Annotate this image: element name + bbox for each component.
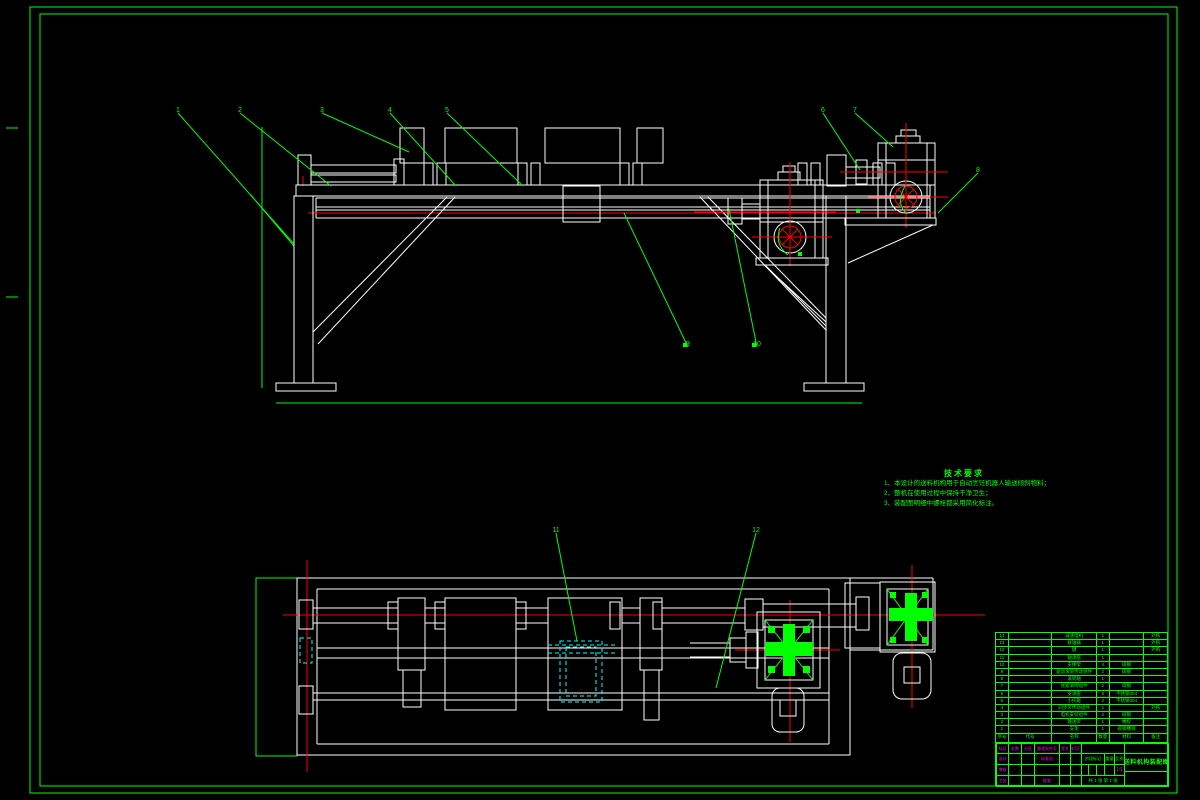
bom-cell: 12 [996, 647, 1009, 653]
bom-row: 8滚筒轴1 [996, 676, 1167, 683]
balloon-label: 7 [853, 107, 857, 114]
balloon-label: 10 [753, 341, 761, 348]
bom-cell: 数量 [1097, 734, 1110, 742]
bom-cell: 14 [996, 633, 1009, 639]
bom-cell [1009, 633, 1052, 639]
bom-cell [1009, 691, 1052, 697]
bom-cell: 2 [1097, 698, 1110, 704]
bom-cell [1144, 676, 1167, 682]
bom-cell: 名称 [1052, 734, 1096, 742]
bom-cell: 1 [1097, 726, 1110, 732]
bom-cell: 7 [996, 683, 1009, 689]
bom-cell: 同步带传动组件 [1052, 705, 1096, 711]
bom-cell: 6 [996, 691, 1009, 697]
bom-cell: 4 [996, 705, 1009, 711]
bom-cell: 外购 [1144, 640, 1167, 646]
bom-cell [1009, 655, 1052, 661]
bom-cell: 2 [1097, 669, 1110, 675]
balloon-label: 9 [686, 341, 690, 348]
bom-cell: 3 [996, 712, 1009, 718]
bom-cell: 1 [1097, 647, 1110, 653]
bom-row: 5小托辊2不锈钢304 [996, 698, 1167, 705]
balloon-leader [729, 209, 757, 347]
bom-cell: 2 [1097, 712, 1110, 718]
bom-cell: 电机安装组件 [1052, 712, 1096, 718]
bom-cell: 支撑架 [1052, 662, 1096, 668]
tech-req-item: 2、整机在使用过程中保持干净卫生； [884, 489, 1056, 499]
bom-cell: 13 [996, 640, 1009, 646]
bom-cell: 轴承座 [1052, 655, 1096, 661]
plan-view [256, 560, 985, 772]
bom-cell: 5 [996, 698, 1009, 704]
bom-cell [1144, 662, 1167, 668]
drawing-title: 送料机构装配图 [1124, 753, 1169, 772]
bom-cell [1009, 640, 1052, 646]
bom-cell: 2 [996, 719, 1009, 725]
bom-cell [1110, 640, 1145, 646]
bom-cell [1144, 726, 1167, 732]
balloon-label: 1 [176, 107, 180, 114]
balloon-leader [178, 113, 294, 244]
bom-row: 1支架1碳钢槽钢 [996, 726, 1167, 733]
leader-square [856, 209, 860, 213]
bom-cell: 9 [996, 669, 1009, 675]
bom-row: 2输送带1橡胶 [996, 719, 1167, 726]
tb-approve-label: 批准 [1034, 775, 1060, 787]
bom-row: 14减速电机1外购 [996, 633, 1167, 640]
pedestals [424, 163, 895, 185]
balloon-leader [855, 113, 893, 147]
bom-cell [1144, 698, 1167, 704]
front-view [250, 123, 948, 403]
bom-cell [1009, 662, 1052, 668]
technical-requirements: 技术要求 1、本设计的送料机构用于自动烹饪机器人输送倾斜物料； 2、整机在使用过… [884, 468, 1056, 509]
bom-row: 7张紧滚筒组件2碳钢 [996, 683, 1167, 690]
bom-cell: 8 [1097, 691, 1110, 697]
bom-cell: 11 [996, 655, 1009, 661]
bom-row: 6支承座8不锈钢304 [996, 691, 1167, 698]
bom-cell: 不锈钢304 [1110, 691, 1145, 697]
bom-cell: 驱动滚筒传动组件 [1052, 669, 1096, 675]
bom-cell: 代号 [1009, 734, 1052, 742]
bom-cell: 碳钢 [1110, 712, 1145, 718]
tech-req-item: 3、装配图明细中螺栓都采用简化标注。 [884, 499, 1056, 509]
bom-cell [1110, 655, 1145, 661]
balloon-label: 4 [388, 107, 392, 114]
bom-cell: 1 [1097, 640, 1110, 646]
bom-cell: 备注 [1144, 734, 1167, 742]
bom-cell: 输送带 [1052, 719, 1096, 725]
balloon-leader [938, 173, 978, 213]
bom-cell: 碳钢 [1110, 669, 1145, 675]
bom-cell [1110, 633, 1145, 639]
bom-cell [1144, 683, 1167, 689]
bom-cell: 10 [996, 662, 1009, 668]
bom-cell [1009, 712, 1052, 718]
leader-square [798, 252, 802, 256]
balloon-label: 12 [752, 527, 760, 534]
bom-cell [1009, 683, 1052, 689]
bom-cell: 键 [1052, 647, 1096, 653]
bom-cell: 滚筒轴 [1052, 676, 1096, 682]
title-block: 标记 处数 分区 更改文件号 签名 年月日 设计 标准化 审核 工艺 批准 阶段… [995, 742, 1168, 786]
tb-sheet-note: 共 1 张 第 1 张 [1081, 775, 1125, 787]
balloon-leader [556, 533, 577, 641]
bom-cell: 1 [1097, 633, 1110, 639]
bom-cell: 支架 [1052, 726, 1096, 732]
bom-cell: 碳钢槽钢 [1110, 726, 1145, 732]
bom-cell: 1 [996, 726, 1009, 732]
bom-cell: 碳钢 [1110, 683, 1145, 689]
bom-cell: 1 [1097, 676, 1110, 682]
balloon-leader [624, 213, 688, 347]
balloon-leader [823, 113, 860, 170]
balloon-label: 6 [821, 107, 825, 114]
bom-cell [1144, 669, 1167, 675]
bom-cell [1110, 676, 1145, 682]
bom-table: 14减速电机1外购13联轴器1外购12键1外购11轴承座110支撑架4碳钢9驱动… [995, 632, 1168, 743]
balloon-label: 8 [976, 167, 980, 174]
balloon-leader [447, 113, 523, 186]
bom-cell [1009, 698, 1052, 704]
bom-cell: 序号 [996, 734, 1009, 742]
bom-cell [1144, 691, 1167, 697]
bom-cell: 4 [1097, 662, 1110, 668]
balloon-label: 2 [238, 107, 242, 114]
bom-cell [1110, 647, 1145, 653]
bom-cell: 减速电机 [1052, 633, 1096, 639]
tech-req-title: 技术要求 [884, 468, 1044, 479]
balloon-label: 5 [445, 107, 449, 114]
bom-cell: 联轴器 [1052, 640, 1096, 646]
bom-cell [1110, 705, 1145, 711]
bom-cell: 外购 [1144, 633, 1167, 639]
tech-req-item: 1、本设计的送料机构用于自动烹饪机器人输送倾斜物料； [884, 479, 1056, 489]
balloon-label: 3 [320, 107, 324, 114]
bom-row: 4同步带传动组件1外购 [996, 705, 1167, 712]
bom-cell [1009, 726, 1052, 732]
bom-cell: 1 [1097, 655, 1110, 661]
bom-row: 3电机安装组件2碳钢 [996, 712, 1167, 719]
bom-cell: 2 [1097, 683, 1110, 689]
bom-cell: 1 [1097, 705, 1110, 711]
bom-cell: 橡胶 [1110, 719, 1145, 725]
bom-cell [1009, 647, 1052, 653]
bom-row: 11轴承座1 [996, 655, 1167, 662]
bom-cell: 1 [1097, 719, 1110, 725]
bom-cell [1009, 719, 1052, 725]
bom-row: 12键1外购 [996, 647, 1167, 654]
cad-sheet: 123456789101112 技术要求 1、本设计的送料机构用于自动烹饪机器人… [0, 0, 1200, 800]
bom-cell [1009, 676, 1052, 682]
bom-row: 10支撑架4碳钢 [996, 662, 1167, 669]
bom-cell: 碳钢 [1110, 662, 1145, 668]
bom-cell: 8 [996, 676, 1009, 682]
bom-cell [1144, 719, 1167, 725]
bom-row: 9驱动滚筒传动组件2碳钢 [996, 669, 1167, 676]
balloon-leader [716, 533, 756, 688]
bom-cell: 张紧滚筒组件 [1052, 683, 1096, 689]
bom-cell: 材料 [1110, 734, 1145, 742]
bom-cell: 小托辊 [1052, 698, 1096, 704]
balloon-label: 11 [552, 527, 559, 534]
balloon-leader [240, 113, 331, 186]
bom-row: 13联轴器1外购 [996, 640, 1167, 647]
right-gear-unit [845, 582, 935, 699]
bom-cell [1144, 712, 1167, 718]
bom-cell: 外购 [1144, 705, 1167, 711]
bom-cell [1144, 655, 1167, 661]
bom-cell: 不锈钢304 [1110, 698, 1145, 704]
bom-cell [1009, 669, 1052, 675]
bom-cell [1009, 705, 1052, 711]
bom-cell: 外购 [1144, 647, 1167, 653]
bom-cell: 支承座 [1052, 691, 1096, 697]
